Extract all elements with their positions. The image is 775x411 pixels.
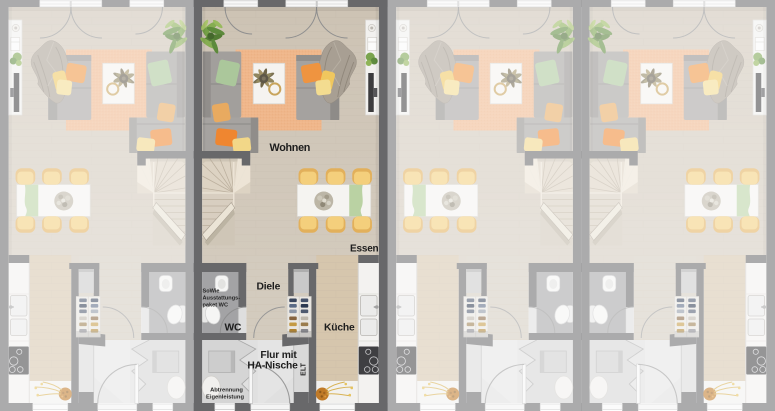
svg-text:Flur mit: Flur mit	[260, 350, 297, 361]
svg-text:Küche: Küche	[324, 323, 355, 334]
svg-text:paket WC: paket WC	[203, 303, 229, 309]
svg-text:Eigenleistung: Eigenleistung	[206, 395, 244, 401]
svg-text:Essen: Essen	[350, 244, 379, 255]
svg-text:Abtrennung: Abtrennung	[210, 388, 243, 394]
svg-text:ELT: ELT	[301, 362, 308, 375]
svg-text:Wohnen: Wohnen	[270, 142, 311, 154]
svg-text:SoWie: SoWie	[203, 289, 220, 295]
svg-text:Ausstattungs-: Ausstattungs-	[203, 296, 241, 302]
svg-text:WC: WC	[225, 323, 243, 334]
svg-text:Diele: Diele	[257, 282, 281, 293]
svg-text:HA-Nische: HA-Nische	[247, 361, 298, 372]
